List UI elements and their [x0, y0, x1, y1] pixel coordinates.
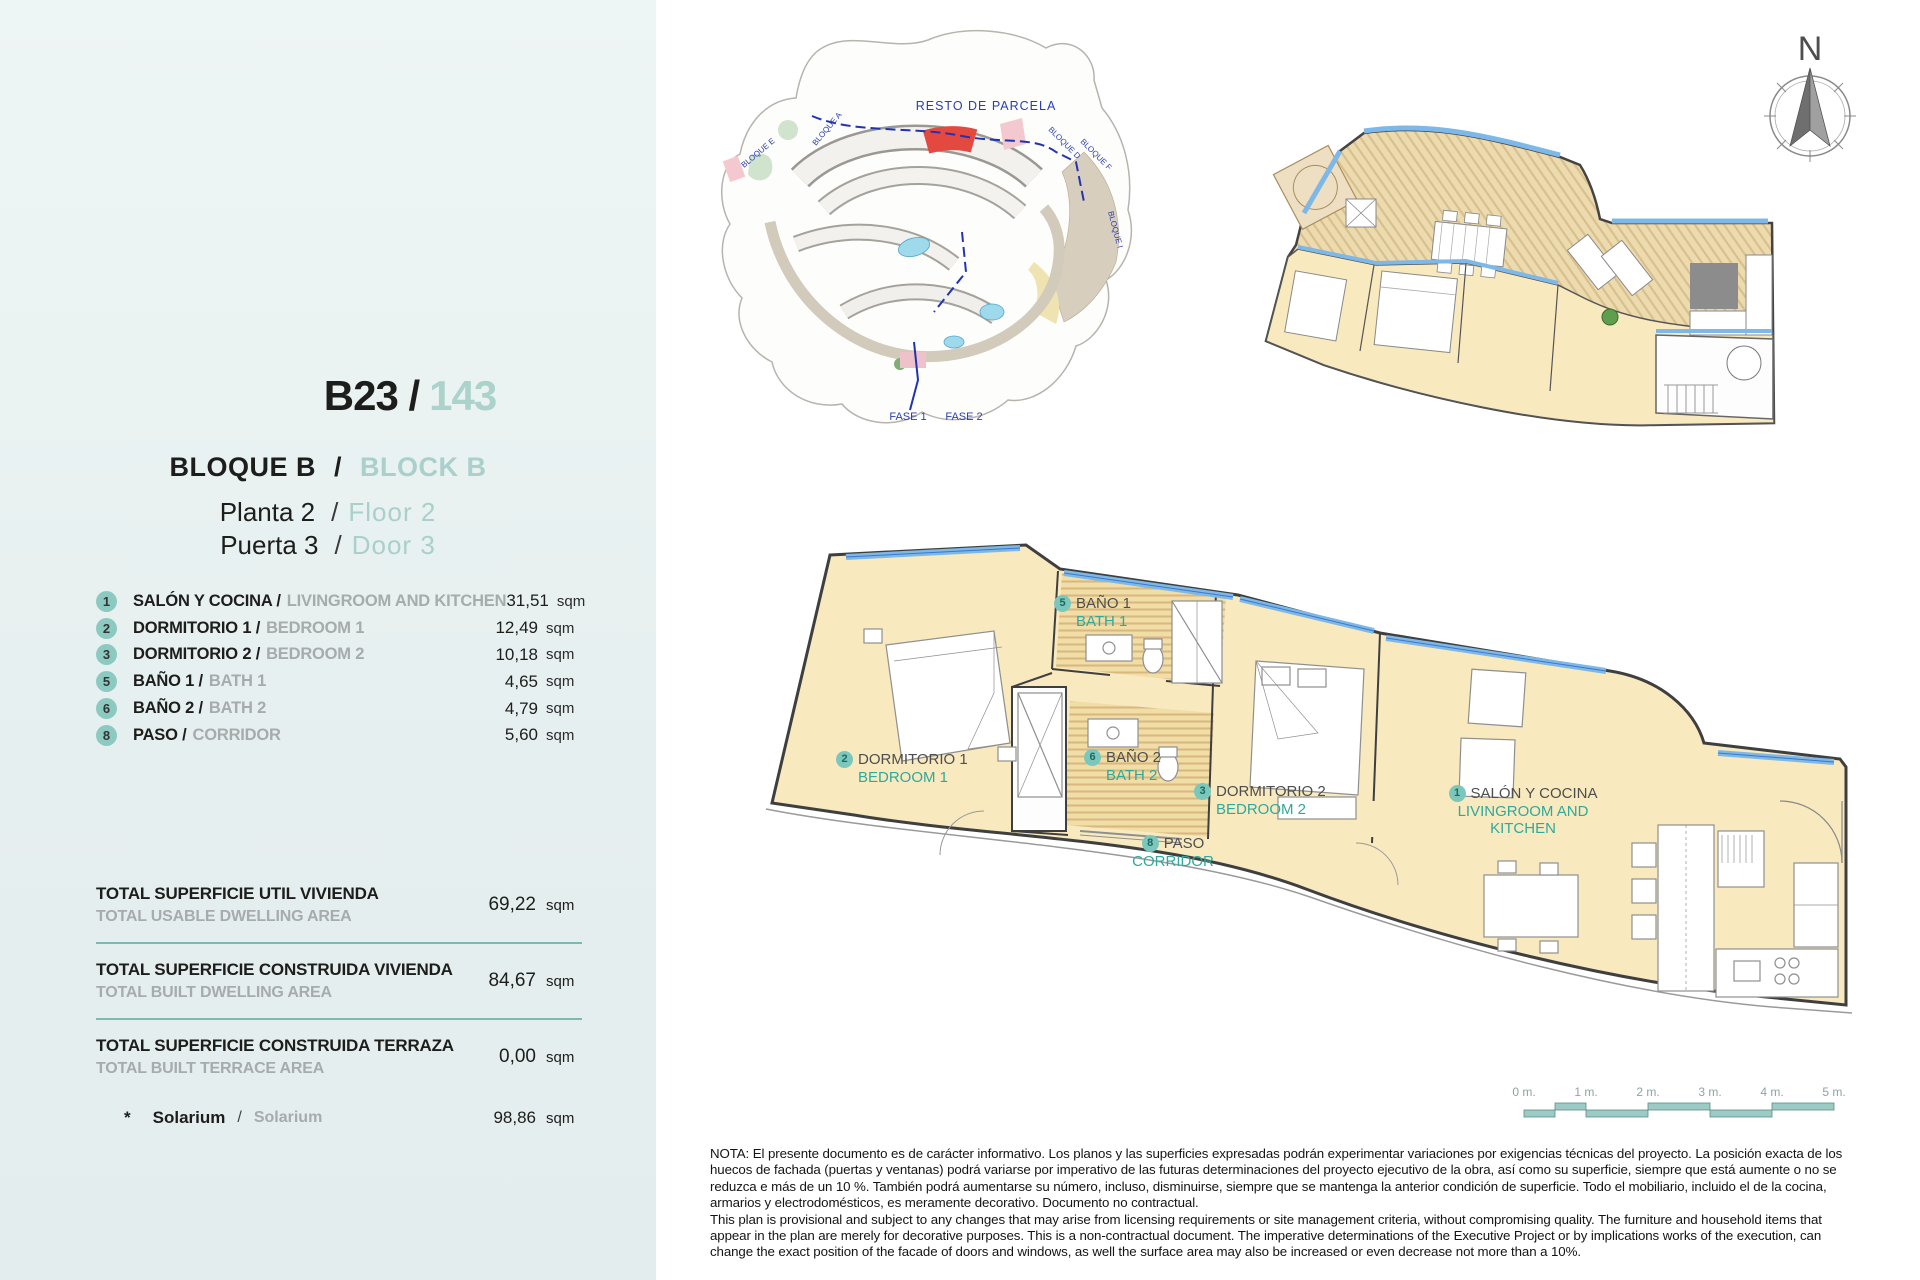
scale-segments: [1524, 1103, 1834, 1117]
room-row-corridor: 8 PASO / CORRIDOR 5,60 sqm: [96, 722, 582, 749]
room-area-value: 4,65: [482, 672, 538, 692]
total-built-area: TOTAL SUPERFICIE CONSTRUIDA VIVIENDA TOT…: [96, 960, 582, 1002]
door-en: Door 3: [352, 530, 436, 560]
room-number-badge: 8: [1142, 835, 1159, 852]
green-area: [778, 120, 798, 140]
bed: [1285, 271, 1347, 341]
door-line: Puerta 3/Door 3: [28, 530, 628, 561]
rug: [1690, 263, 1738, 309]
floor-en: Floor 2: [348, 497, 436, 527]
total-terrace-area: TOTAL SUPERFICIE CONSTRUIDA TERRAZA TOTA…: [96, 1036, 582, 1078]
room-area-list: 1 SALÓN Y COCINA / LIVINGROOM AND KITCHE…: [96, 588, 582, 749]
total-value: 0,00: [480, 1046, 536, 1068]
room-row-bath2: 6 BAÑO 2 / BATH 2 4,79 sqm: [96, 695, 582, 722]
north-label: N: [1798, 30, 1823, 68]
room-number-badge: 3: [1194, 783, 1211, 800]
solarium-row: * Solarium / Solarium 98,86 sqm: [96, 1108, 582, 1128]
fase2-label: FASE 2: [945, 411, 982, 423]
asterisk: *: [124, 1108, 131, 1128]
room-row-bedroom2: 3 DORMITORIO 2 / BEDROOM 2 10,18 sqm: [96, 642, 582, 669]
resto-de-parcela-label: RESTO DE PARCELA: [916, 99, 1057, 113]
unit-number: 143: [429, 372, 496, 419]
room-row-bedroom1: 2 DORMITORIO 1 / BEDROOM 1 12,49 sqm: [96, 615, 582, 642]
legal-note: NOTA: El presente documento es de caráct…: [710, 1146, 1860, 1261]
room-number-badge: 5: [96, 671, 117, 692]
note-line: armarios y electrodomésticos, es meramen…: [710, 1195, 1860, 1211]
room-row-salon: 1 SALÓN Y COCINA / LIVINGROOM AND KITCHE…: [96, 588, 582, 615]
note-line: reduzca e más de un 10 %. También podrá …: [710, 1179, 1860, 1195]
svg-text:5 m.: 5 m.: [1822, 1085, 1845, 1099]
note-line: appear in the plan are merely for decora…: [710, 1228, 1860, 1244]
bed: [1374, 271, 1457, 353]
room-row-bath1: 5 BAÑO 1 / BATH 1 4,65 sqm: [96, 668, 582, 695]
plan-label-corridor: 8PASO CORRIDOR: [1118, 835, 1228, 870]
floor-plan-sheet: B23 /143 BLOQUE B/BLOCK B Planta 2/Floor…: [0, 0, 1920, 1280]
block-line: BLOQUE B/BLOCK B: [28, 452, 628, 483]
total-usable-area: TOTAL SUPERFICIE UTIL VIVIENDA TOTAL USA…: [96, 884, 582, 926]
room-area-value: 12,49: [482, 618, 538, 638]
block-en: BLOCK B: [360, 452, 487, 482]
totals-section: TOTAL SUPERFICIE UTIL VIVIENDA TOTAL USA…: [96, 884, 582, 1128]
unit-title: B23 /143: [110, 372, 710, 420]
lift-shaft: [1727, 346, 1761, 380]
room-number-badge: 5: [1054, 595, 1071, 612]
pink-block: [900, 352, 926, 368]
room-number-badge: 8: [96, 725, 117, 746]
svg-text:3 m.: 3 m.: [1698, 1085, 1721, 1099]
svg-text:1 m.: 1 m.: [1574, 1085, 1597, 1099]
floor-es: Planta 2: [220, 497, 315, 527]
block-separator: /: [334, 452, 342, 482]
pool: [944, 336, 964, 348]
fase1-label: FASE 1: [889, 411, 926, 423]
scale-bar-figure: 0 m. 1 m. 2 m. 3 m. 4 m. 5 m.: [1492, 1082, 1862, 1135]
room-number-badge: 1: [96, 591, 117, 612]
room-area-value: 4,79: [482, 699, 538, 719]
room-number-badge: 2: [836, 751, 853, 768]
svg-text:2 m.: 2 m.: [1636, 1085, 1659, 1099]
highlighted-unit: [926, 138, 974, 142]
svg-text:4 m.: 4 m.: [1760, 1085, 1783, 1099]
note-line: NOTA: El presente documento es de caráct…: [710, 1146, 1860, 1162]
unit-code: B23 /: [324, 372, 419, 419]
plan-label-bedroom2: 3DORMITORIO 2 BEDROOM 2: [1194, 783, 1326, 818]
room-area-value: 31,51: [506, 591, 549, 611]
door-es: Puerta 3: [220, 530, 318, 560]
room-area-value: 10,18: [482, 645, 538, 665]
note-line: This plan is provisional and subject to …: [710, 1212, 1860, 1228]
solarium-value: 98,86: [480, 1108, 536, 1128]
utility-room: [1656, 335, 1773, 419]
door-opening: [1364, 801, 1380, 837]
note-line: change the exact position of the facade …: [710, 1244, 1860, 1260]
compass-figure: N: [1746, 22, 1876, 172]
room-number-badge: 2: [96, 618, 117, 639]
site-plan: RESTO DE PARCELA FASE 1 FASE 2 BLOQUE E …: [704, 12, 1140, 436]
divider: [96, 942, 582, 944]
door-separator: /: [335, 530, 342, 560]
room-area-value: 5,60: [482, 725, 538, 745]
room-number-badge: 6: [96, 698, 117, 719]
sofa: [1746, 255, 1772, 335]
svg-text:0 m.: 0 m.: [1512, 1085, 1535, 1099]
site-plan-figure: RESTO DE PARCELA FASE 1 FASE 2 BLOQUE E …: [704, 12, 1140, 441]
plan-label-bedroom1: 2DORMITORIO 1 BEDROOM 1: [836, 751, 968, 786]
floor-line: Planta 2/Floor 2: [28, 497, 628, 528]
main-floor-plan: 5BAÑO 1 BATH 1 2DORMITORIO 1 BEDROOM 1 6…: [758, 543, 1873, 1018]
total-value: 84,67: [480, 970, 536, 992]
divider: [96, 1018, 582, 1020]
total-value: 69,22: [480, 894, 536, 916]
plan-label-bath1: 5BAÑO 1 BATH 1: [1054, 595, 1131, 630]
plant: [1602, 309, 1618, 325]
solarium-plan: [1228, 95, 1788, 435]
note-line: huecos de fachada (puertas y ventanas) p…: [710, 1162, 1860, 1178]
north-compass-icon: N: [1746, 22, 1876, 167]
plan-label-livingroom: 1SALÓN Y COCINA LIVINGROOM AND KITCHEN: [1434, 785, 1612, 837]
skylight: [1346, 199, 1376, 227]
solarium-plan-figure: [1228, 95, 1788, 440]
scale-bar: 0 m. 1 m. 2 m. 3 m. 4 m. 5 m.: [1492, 1082, 1862, 1130]
room-number-badge: 3: [96, 644, 117, 665]
info-sidebar: B23 /143 BLOQUE B/BLOCK B Planta 2/Floor…: [0, 0, 656, 1280]
scale-labels: 0 m. 1 m. 2 m. 3 m. 4 m. 5 m.: [1512, 1085, 1845, 1099]
block-es: BLOQUE B: [169, 452, 316, 482]
room-number-badge: 6: [1084, 749, 1101, 766]
plan-label-bath2: 6BAÑO 2 BATH 2: [1084, 749, 1161, 784]
pool: [980, 304, 1004, 320]
room-number-badge: 1: [1449, 785, 1466, 802]
floor-separator: /: [331, 497, 338, 527]
